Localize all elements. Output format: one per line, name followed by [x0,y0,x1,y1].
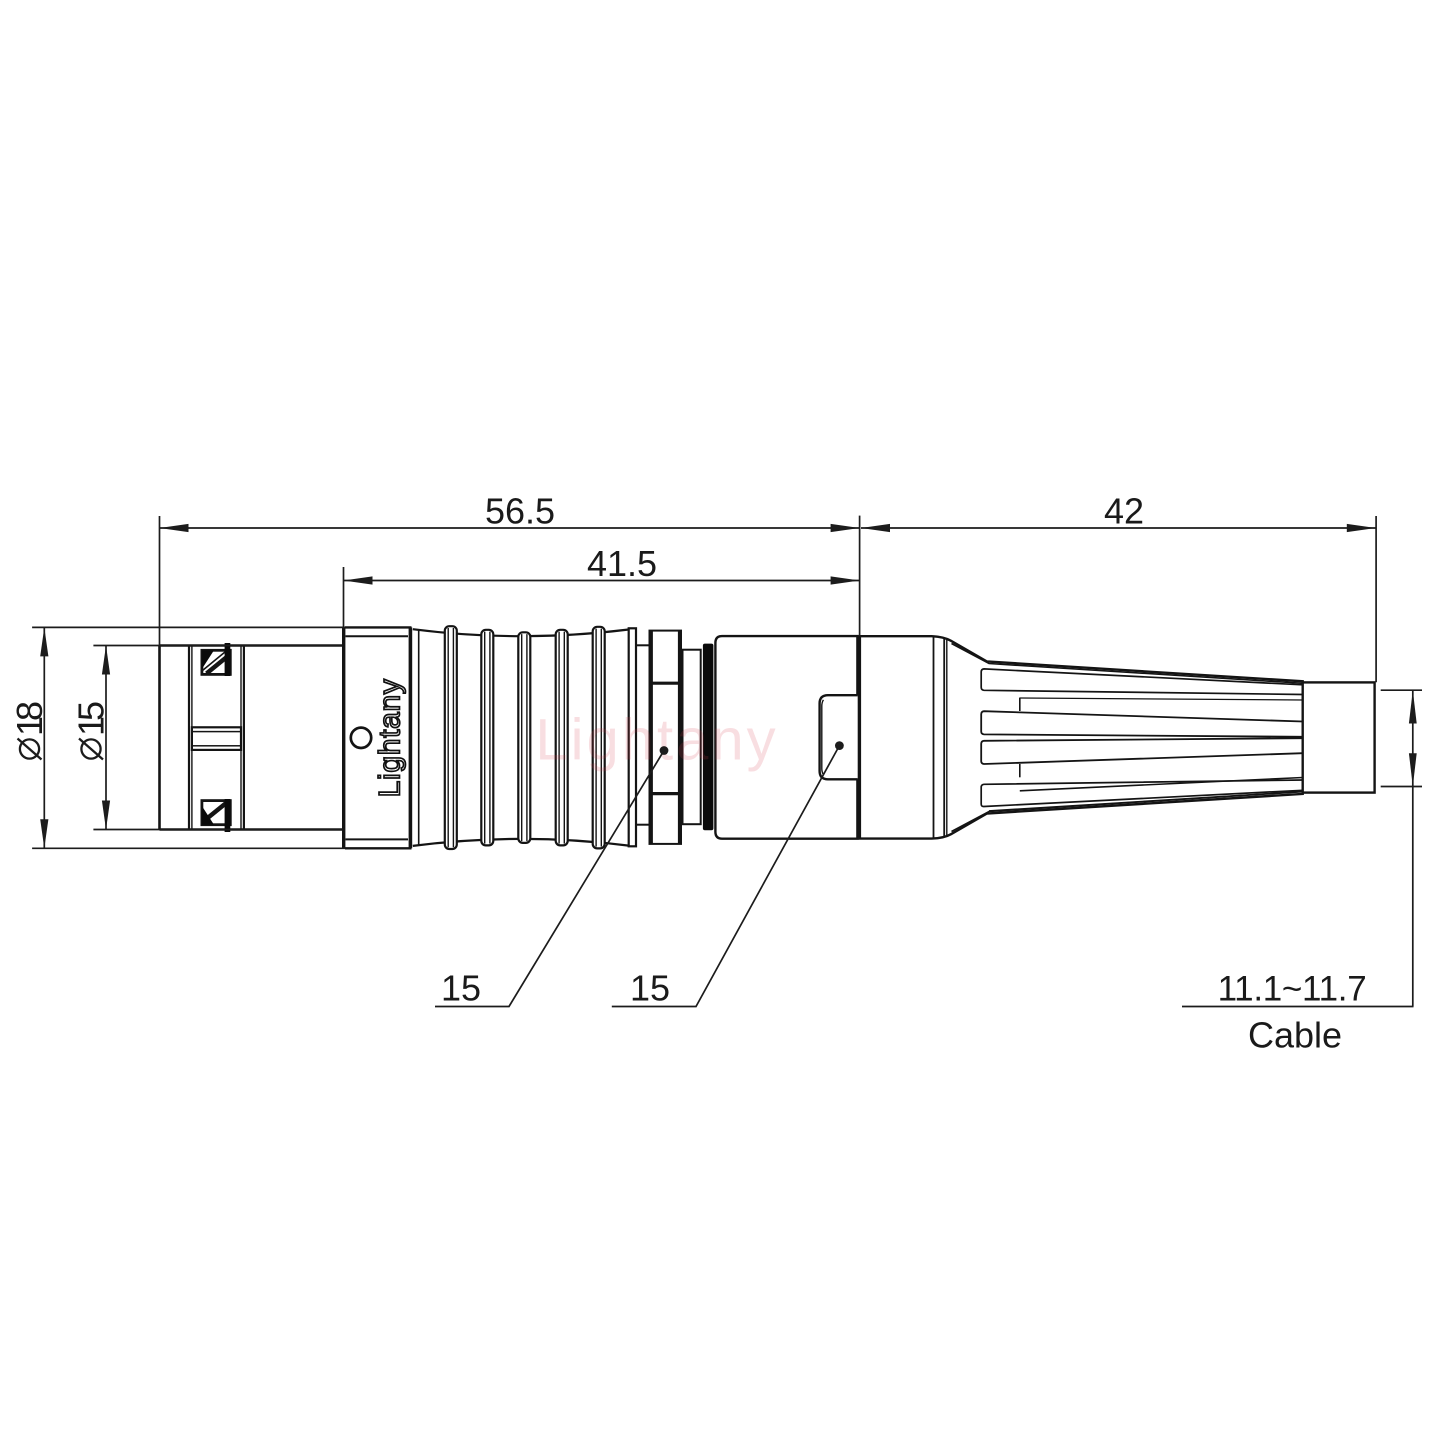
svg-text:18: 18 [9,701,50,736]
svg-text:15: 15 [441,968,481,1009]
svg-text:Cable: Cable [1248,1015,1342,1056]
svg-text:15: 15 [71,701,112,736]
svg-text:56.5: 56.5 [485,491,555,532]
svg-text:41.5: 41.5 [587,543,657,584]
svg-text:15: 15 [630,968,670,1009]
svg-text:Lightany: Lightany [373,678,406,797]
svg-text:11.1~11.7: 11.1~11.7 [1218,970,1367,1009]
svg-text:42: 42 [1104,491,1144,532]
